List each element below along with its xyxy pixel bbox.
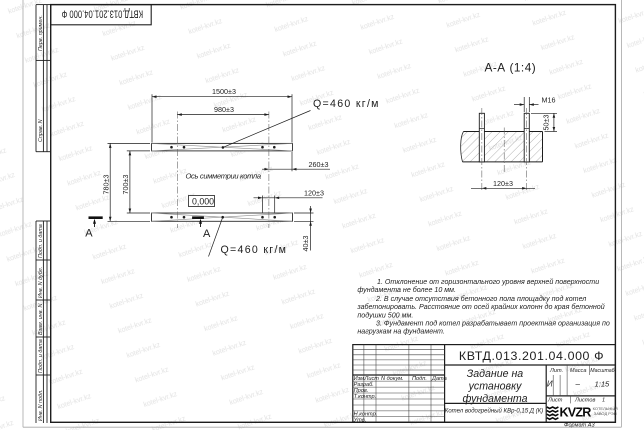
svg-text:КВТД.013.201.04.000 Ф: КВТД.013.201.04.000 Ф bbox=[459, 349, 604, 363]
svg-text:М16: М16 bbox=[542, 96, 556, 105]
svg-text:А: А bbox=[203, 228, 211, 240]
svg-text:KVZR: KVZR bbox=[560, 405, 592, 419]
svg-text:КВТД.013.201.04.000 Ф: КВТД.013.201.04.000 Ф bbox=[62, 8, 144, 19]
svg-text:Q=460 кг/м: Q=460 кг/м bbox=[313, 98, 380, 110]
svg-text:И: И bbox=[547, 380, 553, 389]
svg-text:установку: установку bbox=[468, 380, 522, 392]
svg-text:забетонировать. Расстояние от: забетонировать. Расстояние от осей крайн… bbox=[356, 303, 604, 311]
svg-text:Перв. примен.: Перв. примен. bbox=[38, 15, 44, 51]
svg-text:40±3: 40±3 bbox=[301, 236, 310, 252]
svg-text:Лист: Лист bbox=[547, 398, 563, 404]
svg-text:Подп. и дата: Подп. и дата bbox=[38, 339, 44, 373]
svg-text:фундамента не более 10 мм.: фундамента не более 10 мм. bbox=[357, 286, 456, 294]
svg-text:Котел водогрейный КВр-0,15 Д (: Котел водогрейный КВр-0,15 Д (К) bbox=[445, 408, 543, 415]
svg-text:ЗАВОД РЭП: ЗАВОД РЭП bbox=[594, 411, 617, 416]
svg-text:980±3: 980±3 bbox=[214, 105, 234, 114]
svg-text:50±3: 50±3 bbox=[542, 115, 551, 131]
svg-text:А-А (1:4): А-А (1:4) bbox=[485, 61, 537, 75]
svg-text:Формат А3: Формат А3 bbox=[564, 423, 595, 429]
svg-text:Взам. инв. N: Взам. инв. N bbox=[38, 303, 44, 335]
svg-text:700±3: 700±3 bbox=[121, 175, 130, 195]
svg-text:Подп. и дата: Подп. и дата bbox=[38, 224, 44, 258]
svg-text:Лит.: Лит. bbox=[549, 368, 563, 374]
svg-text:1. Отклонение от горизонтально: 1. Отклонение от горизонтального уровня … bbox=[377, 278, 599, 286]
svg-text:2. В случае отсутствия бетонно: 2. В случае отсутствия бетонного пола пл… bbox=[375, 295, 586, 303]
svg-text:Листов: Листов bbox=[574, 398, 595, 404]
svg-text:260±3: 260±3 bbox=[309, 160, 329, 169]
svg-text:1:15: 1:15 bbox=[595, 380, 611, 389]
svg-text:А: А bbox=[85, 228, 93, 240]
svg-text:Масштаб: Масштаб bbox=[590, 368, 615, 374]
svg-text:1500±3: 1500±3 bbox=[212, 87, 236, 96]
svg-text:Инв. N подл.: Инв. N подл. bbox=[38, 389, 44, 421]
svg-text:0,000: 0,000 bbox=[192, 196, 214, 206]
svg-text:фундамента: фундамента bbox=[462, 393, 527, 405]
svg-text:Утв.: Утв. bbox=[353, 417, 367, 423]
svg-text:1: 1 bbox=[602, 398, 605, 404]
svg-text:Задание на: Задание на bbox=[467, 368, 524, 380]
svg-text:Ось симметрии котла: Ось симметрии котла bbox=[186, 171, 261, 180]
svg-text:Пров.: Пров. bbox=[354, 388, 369, 394]
svg-text:–: – bbox=[576, 380, 581, 389]
svg-text:N докум.: N докум. bbox=[381, 376, 404, 382]
svg-text:3. Фундамент под котел разраба: 3. Фундамент под котел разрабатывает про… bbox=[376, 320, 610, 328]
svg-text:120±3: 120±3 bbox=[493, 179, 513, 188]
svg-text:Справ. N: Справ. N bbox=[38, 119, 44, 142]
svg-text:Масса: Масса bbox=[570, 368, 587, 374]
svg-text:Инв. N дубл.: Инв. N дубл. bbox=[38, 267, 44, 298]
svg-text:подушки 500 мм.: подушки 500 мм. bbox=[357, 311, 413, 319]
svg-text:780±3: 780±3 bbox=[101, 175, 110, 195]
svg-text:Дата: Дата bbox=[431, 376, 447, 382]
svg-text:Т.контр.: Т.контр. bbox=[354, 394, 377, 400]
svg-text:Подп.: Подп. bbox=[412, 376, 427, 382]
svg-text:120±3: 120±3 bbox=[304, 188, 324, 197]
svg-text:Q=460 кг/м: Q=460 кг/м bbox=[221, 244, 288, 256]
svg-text:Лист: Лист bbox=[364, 376, 380, 382]
svg-text:нагрузкам на фундамент.: нагрузкам на фундамент. bbox=[357, 328, 444, 336]
